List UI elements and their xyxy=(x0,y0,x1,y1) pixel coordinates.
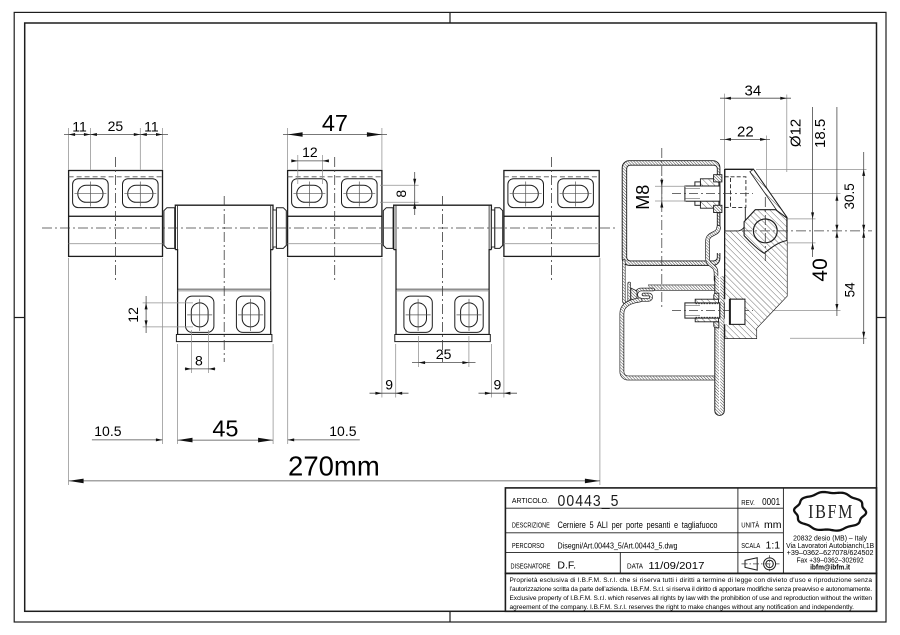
svg-text:10.5: 10.5 xyxy=(329,423,356,439)
svg-text:54: 54 xyxy=(842,282,857,298)
svg-text:mm: mm xyxy=(764,519,782,531)
svg-text:REV.: REV. xyxy=(741,498,755,507)
svg-text:30.5: 30.5 xyxy=(842,183,857,209)
svg-text:1:1: 1:1 xyxy=(765,539,780,551)
svg-text:12: 12 xyxy=(125,307,141,323)
svg-text:ARTICOLO.: ARTICOLO. xyxy=(512,496,549,505)
svg-text:40: 40 xyxy=(809,258,832,281)
svg-text:12: 12 xyxy=(302,144,318,160)
svg-text:20832 desio (MB) – Italy: 20832 desio (MB) – Italy xyxy=(793,536,867,543)
svg-text:9: 9 xyxy=(494,377,502,393)
svg-text:DISEGNATORE: DISEGNATORE xyxy=(511,562,551,571)
svg-text:l’autorizzazione scritta da pa: l’autorizzazione scritta da parte dell’a… xyxy=(510,586,873,593)
svg-text:PERCORSO: PERCORSO xyxy=(512,541,545,550)
svg-text:11: 11 xyxy=(72,119,87,135)
svg-text:9: 9 xyxy=(385,377,393,393)
svg-text:Ø12: Ø12 xyxy=(787,119,804,147)
svg-text:11/09/2017: 11/09/2017 xyxy=(648,560,704,572)
svg-text:Exclusive property of I.B.F.M.: Exclusive property of I.B.F.M. S.r.l. wh… xyxy=(510,595,873,602)
svg-text:25: 25 xyxy=(436,346,452,362)
svg-text:11: 11 xyxy=(144,119,159,135)
svg-text:0001: 0001 xyxy=(762,496,780,508)
svg-text:47: 47 xyxy=(322,110,348,136)
svg-text:Proprietà esclusiva di I.B.F.M: Proprietà esclusiva di I.B.F.M. S.r.l. c… xyxy=(510,577,873,584)
svg-text:D.F.: D.F. xyxy=(557,560,576,572)
svg-text:Via Lavoratori Autobianchi,1B: Via Lavoratori Autobianchi,1B xyxy=(786,543,874,550)
svg-text:8: 8 xyxy=(393,190,409,198)
svg-text:25: 25 xyxy=(108,118,124,134)
svg-text:22: 22 xyxy=(737,123,754,140)
svg-text:+39–0362–627078/624502: +39–0362–627078/624502 xyxy=(787,550,874,557)
svg-text:SCALA: SCALA xyxy=(741,541,760,550)
svg-text:IBFM: IBFM xyxy=(808,502,854,523)
svg-text:Disegni/Art.00443_5/Art.00443_: Disegni/Art.00443_5/Art.00443_5.dwg xyxy=(558,540,678,550)
svg-text:18.5: 18.5 xyxy=(812,119,829,148)
svg-text:10.5: 10.5 xyxy=(94,423,121,439)
svg-text:UNITÀ: UNITÀ xyxy=(741,521,759,530)
svg-text:Fax +39–0362–302692: Fax +39–0362–302692 xyxy=(797,557,864,564)
svg-text:45: 45 xyxy=(212,415,238,441)
svg-text:DATA: DATA xyxy=(627,562,643,571)
svg-text:270mm: 270mm xyxy=(288,451,380,482)
svg-text:agreement of the company. I.B.: agreement of the company. I.B.F.M. S.r.l… xyxy=(510,604,855,611)
svg-text:M8: M8 xyxy=(633,185,653,210)
svg-text:Cerniere 5 ALI per porte pesan: Cerniere 5 ALI per porte pesanti e tagli… xyxy=(558,520,718,530)
svg-text:34: 34 xyxy=(745,82,762,99)
svg-text:8: 8 xyxy=(195,353,203,369)
svg-text:00443_5: 00443_5 xyxy=(558,493,620,510)
svg-text:ibfm@ibfm.it: ibfm@ibfm.it xyxy=(810,565,851,572)
svg-text:DESCRIZIONE: DESCRIZIONE xyxy=(512,521,550,530)
